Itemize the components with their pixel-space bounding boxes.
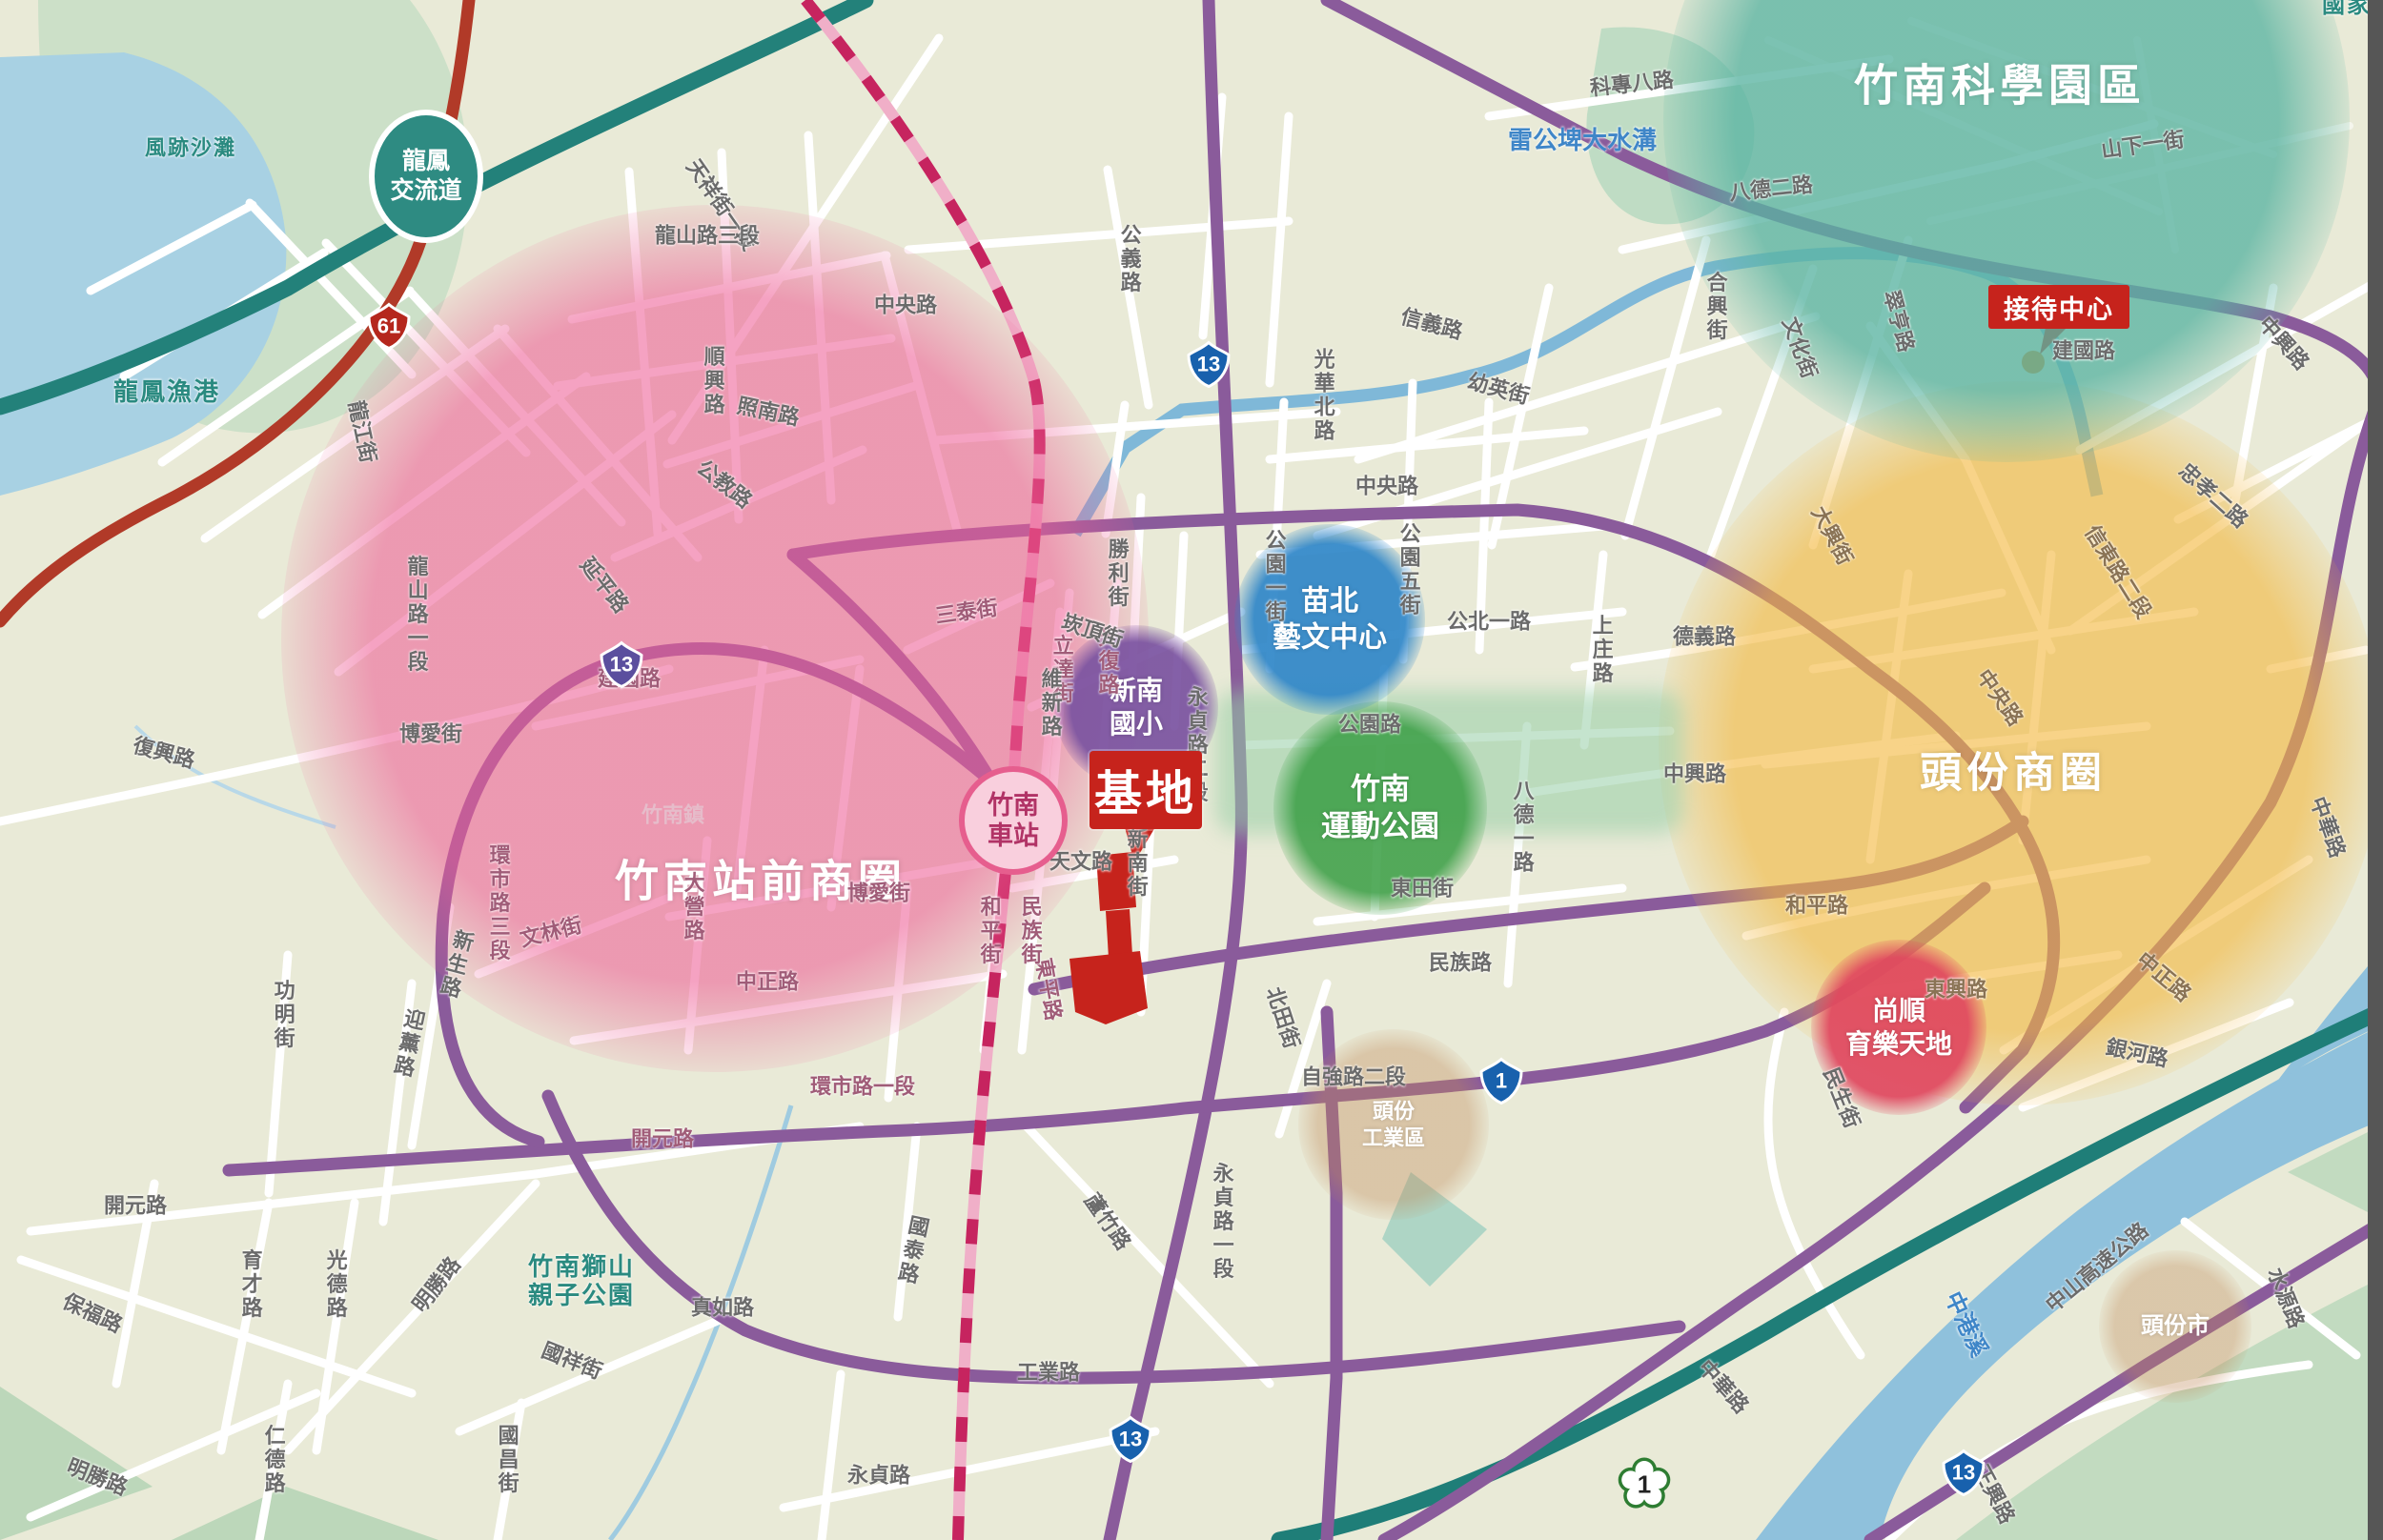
provincial-route-13-shield: 13: [1109, 1416, 1152, 1469]
longfeng-interchange-badge: 龍鳳 交流道: [369, 110, 483, 243]
zone-sports-park-label: 竹南 運動公園: [1321, 771, 1439, 845]
road-label: 公園路: [1338, 712, 1401, 736]
road-label: 大營路: [681, 872, 704, 943]
road-label: 合興街: [1703, 272, 1727, 343]
svg-text:13: 13: [1119, 1428, 1142, 1451]
road-label: 八德一路: [1510, 780, 1534, 875]
area-toufen-district-title: 頭份商圈: [1920, 750, 2107, 799]
area-science-park-title: 竹南科學園區: [1854, 61, 2146, 111]
svg-text:1: 1: [1638, 1470, 1651, 1499]
road-label: 開元路: [104, 1193, 167, 1217]
road-label: 功明街: [271, 980, 295, 1051]
reception-center-label: 接待中心: [1988, 285, 2129, 329]
svg-text:13: 13: [1952, 1461, 1975, 1485]
road-label: 中正路: [736, 969, 799, 993]
jianguo-road-arc: [1327, 0, 2378, 1540]
yongzhen-s-road: [1327, 1012, 1336, 1540]
road-label: 博愛街: [847, 881, 910, 904]
road-label: 博愛街: [399, 721, 462, 745]
provincial-route-13-shield: 13: [600, 641, 643, 694]
area-fengji-beach: 風跡沙灘: [145, 135, 236, 159]
road-label: 中興路: [1663, 761, 1726, 785]
road-label: 國昌街: [495, 1425, 519, 1496]
road-label: 德義路: [1673, 624, 1736, 648]
green-patch-center: [1382, 1172, 1487, 1287]
road-label: 自強路二段: [1301, 1064, 1406, 1088]
road-label: 天文路: [1049, 849, 1112, 873]
road-label: 真如路: [691, 1295, 754, 1319]
water-leigongpi-ditch: 雷公埤大水溝: [1508, 127, 1657, 155]
road-label: 公北一路: [1447, 609, 1531, 633]
green-patch-sw2: [172, 1487, 438, 1540]
provincial-route-13-shield: 13: [1942, 1449, 1986, 1502]
svg-text:13: 13: [1197, 353, 1220, 376]
provincial-route-1-shield: 1: [1479, 1058, 1523, 1110]
road-label: 和平路: [1785, 893, 1848, 917]
road-label: 公園五街: [1396, 522, 1420, 618]
zhunan-station-badge: 竹南 車站: [959, 766, 1068, 875]
road-label: 光德路: [323, 1249, 347, 1321]
road-label: 開元路: [631, 1126, 694, 1150]
road-label: 中央路: [1355, 474, 1418, 497]
road-label: 公園一街: [1262, 529, 1286, 624]
road-label: 仁德路: [261, 1425, 285, 1496]
road-label: 永貞路一段: [1210, 1163, 1233, 1282]
road-label: 龍山路一段: [404, 556, 428, 675]
area-zhunan-town: 竹南鎮: [642, 802, 704, 826]
road-label: 新南街: [1124, 828, 1148, 900]
zone-toufen-city-label: 頭份市: [2141, 1312, 2210, 1341]
area-shishan-park: 竹南獅山 親子公園: [528, 1253, 635, 1310]
road-label: 龍山路三段: [655, 223, 760, 247]
national-route-1-shield: 1: [1617, 1457, 1672, 1517]
area-partial-corner: 國家: [2322, 0, 2372, 19]
road-label: 中央路: [874, 293, 937, 316]
road-label: 工業路: [1017, 1360, 1080, 1384]
road-label: 公義路: [1117, 224, 1141, 295]
road-label: 勝利街: [1105, 538, 1129, 610]
area-longfeng-harbor: 龍鳳漁港: [113, 378, 220, 407]
window-edge: [2368, 0, 2383, 1540]
road-label: 環市路一段: [810, 1074, 915, 1098]
provincial-route-13-shield: 13: [1187, 341, 1231, 394]
road-label: 永貞路: [847, 1463, 910, 1487]
road-label: 上庄路: [1589, 615, 1613, 686]
road-label: 育才路: [238, 1249, 262, 1321]
zone-toufen-industrial-label: 頭份 工業區: [1362, 1099, 1425, 1151]
road-label: 東興路: [1925, 977, 1987, 1001]
road-label: 光華北路: [1311, 348, 1334, 443]
site-label: 基地: [1090, 751, 1202, 829]
svg-text:1: 1: [1496, 1069, 1507, 1093]
road-label: 環市路三段: [486, 844, 510, 963]
road-label: 建國路: [2052, 338, 2115, 362]
road-label: 維新路: [1038, 668, 1062, 740]
road-label: 順興路: [701, 346, 724, 417]
svg-text:61: 61: [377, 314, 400, 338]
provincial-route-61-shield: 61: [367, 303, 411, 355]
road-label: 民族路: [1429, 950, 1492, 974]
small-stream-sw: [610, 1105, 791, 1540]
science-park-roads: [1768, 21, 2350, 250]
map-canvas[interactable]: 龍鳳 交流道 竹南 車站 基地 接待中心 竹南 運動公園苗北 藝文中心新南 國小…: [0, 0, 2383, 1540]
zone-miaobei-art-center-label: 苗北 藝文中心: [1273, 584, 1387, 656]
road-label: 東田街: [1391, 876, 1454, 900]
road-label: 和平街: [977, 896, 1001, 967]
zone-shangshun-label: 尚順 育樂天地: [1845, 994, 1952, 1061]
svg-text:13: 13: [610, 653, 633, 677]
road-label: 民族街: [1018, 896, 1042, 967]
